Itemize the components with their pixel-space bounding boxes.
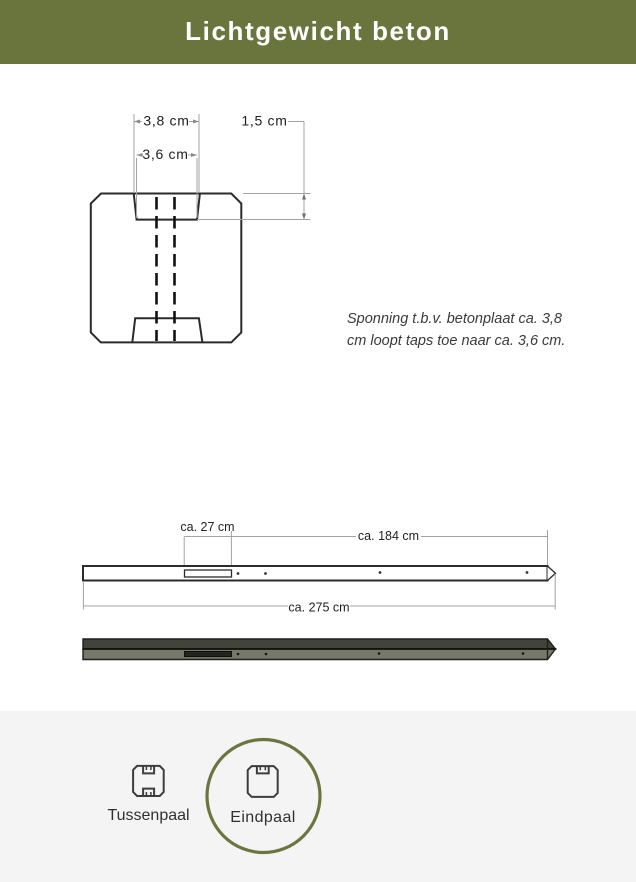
svg-text:ca. 275 cm: ca. 275 cm — [288, 601, 349, 615]
svg-text:ca. 184 cm: ca. 184 cm — [358, 529, 419, 543]
svg-text:1,5 cm: 1,5 cm — [241, 113, 287, 129]
svg-text:3,6 cm: 3,6 cm — [142, 146, 188, 162]
svg-text:Eindpaal: Eindpaal — [230, 809, 295, 826]
svg-text:3,8 cm: 3,8 cm — [143, 113, 189, 129]
svg-text:Tussenpaal: Tussenpaal — [107, 807, 189, 824]
svg-text:ca. 27 cm: ca. 27 cm — [180, 520, 234, 534]
